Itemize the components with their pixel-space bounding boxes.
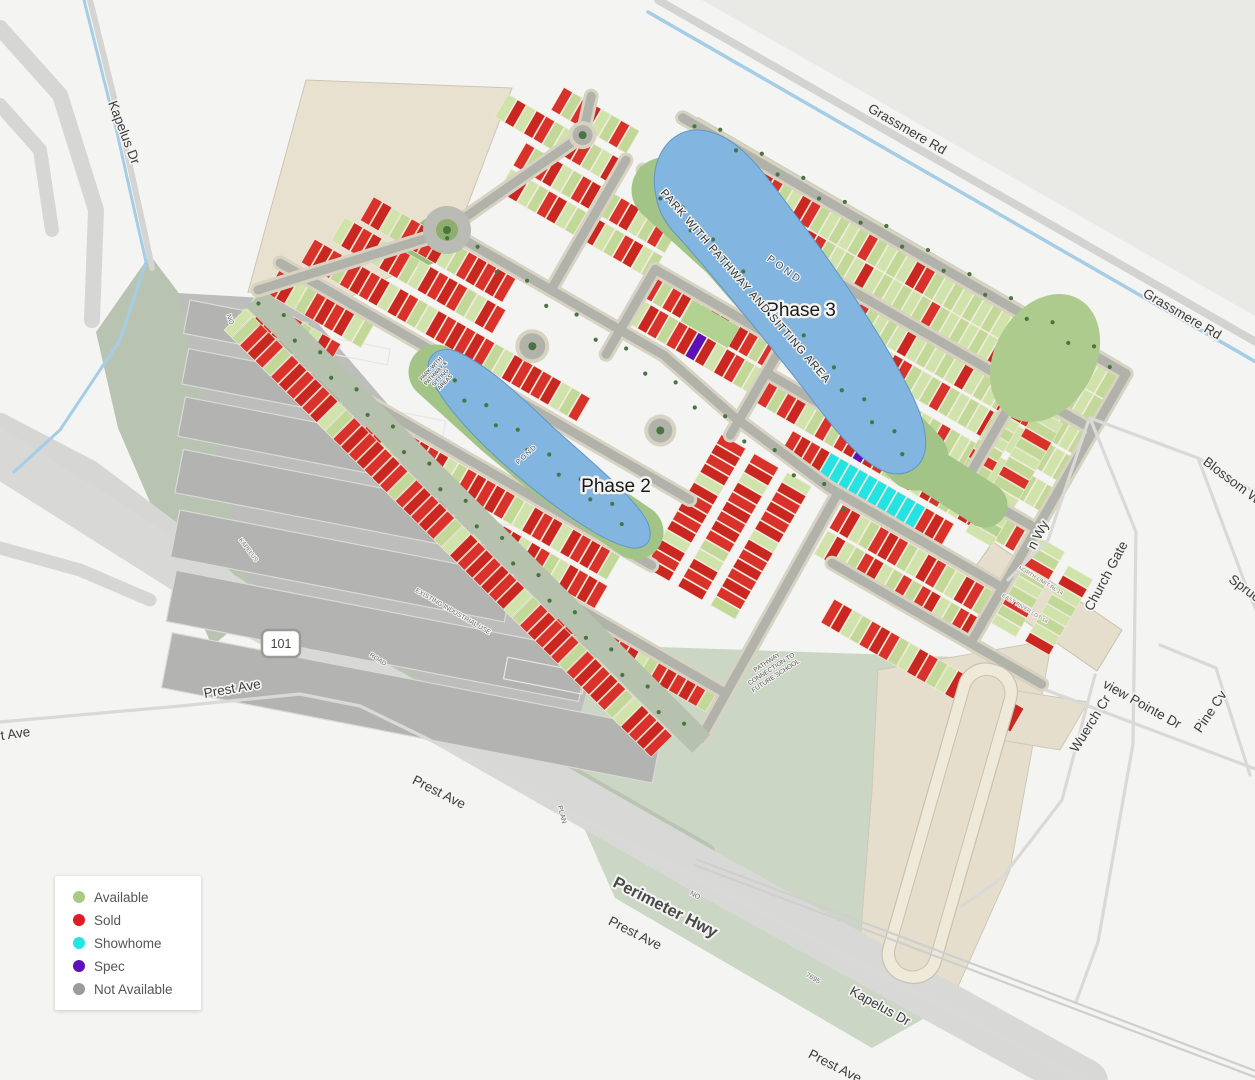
- legend-label: Sold: [94, 913, 121, 928]
- tree: [643, 372, 647, 376]
- legend-label: Spec: [94, 959, 125, 974]
- tree: [693, 405, 697, 409]
- tree: [624, 346, 628, 350]
- tree: [494, 423, 498, 427]
- tree: [462, 399, 466, 403]
- tree: [547, 452, 551, 456]
- tree: [775, 172, 779, 176]
- tree: [445, 236, 449, 240]
- tree: [438, 487, 442, 491]
- tree: [547, 599, 551, 603]
- tree: [329, 376, 333, 380]
- phase-2-label: Phase 2: [581, 476, 651, 497]
- tree: [282, 313, 286, 317]
- tree: [870, 420, 874, 424]
- tree: [682, 722, 686, 726]
- tree: [801, 176, 805, 180]
- tree: [742, 439, 746, 443]
- tree: [822, 482, 826, 486]
- tree: [817, 196, 821, 200]
- tree: [862, 397, 866, 401]
- tree: [692, 124, 696, 128]
- legend-dot: [73, 914, 85, 926]
- legend-label: Not Available: [94, 982, 173, 997]
- tree: [365, 413, 369, 417]
- tree: [588, 497, 592, 501]
- legend-item-spec: Spec: [73, 955, 201, 978]
- tree: [402, 450, 406, 454]
- tree: [391, 424, 395, 428]
- legend-dot: [73, 891, 85, 903]
- legend-item-showhome: Showhome: [73, 932, 201, 955]
- tree: [427, 462, 431, 466]
- tree: [516, 428, 520, 432]
- tree: [723, 414, 727, 418]
- tree: [536, 573, 540, 577]
- tree: [1066, 341, 1070, 345]
- tree: [1025, 317, 1029, 321]
- tree: [525, 279, 529, 283]
- tree: [620, 522, 624, 526]
- tree: [495, 270, 499, 274]
- tree: [718, 128, 722, 132]
- tree: [900, 245, 904, 249]
- tree: [584, 636, 588, 640]
- tree: [983, 293, 987, 297]
- tree: [464, 499, 468, 503]
- legend-dot: [73, 983, 85, 995]
- tree: [674, 380, 678, 384]
- tree: [544, 304, 548, 308]
- tree: [620, 673, 624, 677]
- tree: [1108, 365, 1112, 369]
- tree: [802, 333, 806, 337]
- tree: [475, 524, 479, 528]
- tree: [773, 448, 777, 452]
- legend-dot: [73, 937, 85, 949]
- tree: [734, 148, 738, 152]
- legend-item-sold: Sold: [73, 909, 201, 932]
- tree: [453, 378, 457, 382]
- legend-item-not-available: Not Available: [73, 978, 201, 1001]
- tree: [843, 200, 847, 204]
- lot-map-page: 101Kapelus DrGrassmere RdGrassmere RdBlo…: [0, 0, 1255, 1080]
- tree: [500, 536, 504, 540]
- tree: [792, 473, 796, 477]
- tree: [609, 647, 613, 651]
- tree: [557, 473, 561, 477]
- legend-label: Available: [94, 890, 149, 905]
- tree: [926, 248, 930, 252]
- highway-101-shield-label: 101: [271, 637, 292, 651]
- tree: [511, 561, 515, 565]
- tree: [859, 221, 863, 225]
- tree: [594, 338, 598, 342]
- tree: [610, 502, 614, 506]
- tree: [573, 610, 577, 614]
- tree: [646, 684, 650, 688]
- legend-label: Showhome: [94, 936, 162, 951]
- tree: [1009, 296, 1013, 300]
- tree: [900, 452, 904, 456]
- tree: [293, 339, 297, 343]
- legend-item-available: Available: [73, 886, 201, 909]
- tree: [256, 301, 260, 305]
- tree: [942, 269, 946, 273]
- tree: [892, 429, 896, 433]
- tree: [832, 365, 836, 369]
- tree: [475, 245, 479, 249]
- tree: [354, 387, 358, 391]
- tree: [1092, 344, 1096, 348]
- tree: [1050, 320, 1054, 324]
- tree: [840, 388, 844, 392]
- tree: [967, 272, 971, 276]
- tree: [484, 403, 488, 407]
- pond-end-green: [930, 470, 985, 505]
- tree: [318, 350, 322, 354]
- tree: [575, 312, 579, 316]
- legend-dot: [73, 960, 85, 972]
- tree: [841, 507, 845, 511]
- map-legend: AvailableSoldShowhomeSpecNot Available: [55, 876, 201, 1010]
- tree: [657, 710, 661, 714]
- tree: [760, 152, 764, 156]
- roundabout-tree: [443, 226, 451, 234]
- tree: [884, 224, 888, 228]
